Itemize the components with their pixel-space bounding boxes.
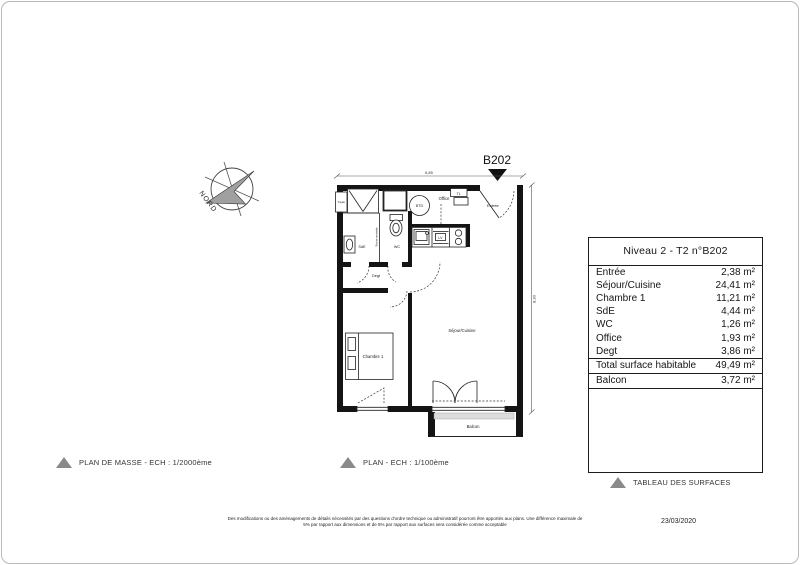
row-value: 1,26 m² — [721, 318, 755, 331]
table-row: Degt 3,86 m² — [589, 345, 762, 358]
row-label: Office — [596, 332, 622, 345]
label-degt: Degt — [372, 274, 381, 278]
table-row: Chambre 1 11,21 m² — [589, 292, 762, 305]
unit-marker-label: B202 — [483, 153, 511, 167]
table-row-total: Total surface habitable 49,49 m² — [589, 358, 762, 373]
technical-duct — [384, 191, 407, 211]
row-value: 24,41 m² — [716, 279, 755, 292]
row-label: Degt — [596, 345, 617, 358]
surface-table-title: Niveau 2 - T2 n°B202 — [589, 238, 762, 266]
floor-plan: B202 6,85 8,30 — [330, 140, 545, 450]
row-label: Entrée — [596, 266, 625, 279]
label-lv: LV — [438, 236, 443, 240]
shower — [348, 189, 379, 213]
label-wc: WC — [394, 245, 401, 249]
document-date: 23/03/2020 — [661, 518, 696, 525]
table-row: Entrée 2,38 m² — [589, 266, 762, 279]
label-sde: SdE — [358, 245, 366, 249]
label-entree: Entrée — [487, 203, 500, 208]
label-balcon: Balcon — [467, 424, 480, 429]
row-label: SdE — [596, 305, 615, 318]
balcony-sill — [434, 413, 514, 419]
legend-label: PLAN DE MASSE - ECH : 1/2000ème — [79, 458, 212, 467]
legend-plan: PLAN - ECH : 1/100ème — [340, 457, 449, 468]
row-label: Chambre 1 — [596, 292, 645, 305]
row-value: 2,38 m² — [721, 266, 755, 279]
table-row: WC 1,26 m² — [589, 318, 762, 331]
table-row: SdE 4,44 m² — [589, 305, 762, 318]
row-label: WC — [596, 318, 613, 331]
compass-rose: NORD — [190, 150, 280, 230]
label-tuyau: Tuyau — [337, 200, 345, 204]
label-chambre: Chambre 1 — [363, 354, 384, 359]
row-label: Balcon — [596, 374, 627, 387]
legend-plan-de-masse: PLAN DE MASSE - ECH : 1/2000ème — [56, 457, 212, 468]
row-label: Total surface habitable — [596, 359, 696, 372]
triangle-icon — [56, 457, 72, 468]
row-value: 49,49 m² — [716, 359, 755, 372]
label-seche-serviette: Sèche-serviette — [375, 227, 379, 247]
label-sejour-cuisine: Séjour/Cuisine — [448, 328, 476, 333]
row-value: 3,72 m² — [721, 374, 755, 387]
north-arrow-icon — [206, 171, 254, 204]
disclaimer-line-2: 5% par rapport aux dimensions et de 5% p… — [200, 522, 610, 528]
row-value: 1,93 m² — [721, 332, 755, 345]
row-value: 4,44 m² — [721, 305, 755, 318]
dim-height-label: 8,30 — [532, 294, 537, 303]
triangle-icon — [610, 477, 626, 488]
row-value: 3,86 m² — [721, 345, 755, 358]
legend-label: PLAN - ECH : 1/100ème — [363, 458, 449, 467]
disclaimer: Des modifications ou des aménagements de… — [200, 516, 610, 528]
dim-width-label: 6,85 — [425, 170, 434, 175]
hob-plate — [455, 238, 461, 244]
surface-table: Niveau 2 - T2 n°B202 Entrée 2,38 m² Séjo… — [588, 237, 763, 473]
table-row: Séjour/Cuisine 24,41 m² — [589, 279, 762, 292]
label-tl: TL — [457, 192, 461, 196]
table-row: Office 1,93 m² — [589, 331, 762, 344]
legend-label: TABLEAU DES SURFACES — [633, 478, 731, 487]
table-row-balcony: Balcon 3,72 m² — [589, 373, 762, 389]
toilet — [390, 215, 403, 221]
label-btd: BTD — [416, 204, 424, 208]
triangle-icon — [340, 457, 356, 468]
unit-marker-arrow-icon — [488, 169, 507, 181]
row-label: Séjour/Cuisine — [596, 279, 661, 292]
row-value: 11,21 m² — [716, 292, 755, 305]
label-office: Office — [439, 196, 451, 201]
legend-tableau-des-surfaces: TABLEAU DES SURFACES — [610, 477, 731, 488]
hob-plate — [455, 230, 461, 236]
